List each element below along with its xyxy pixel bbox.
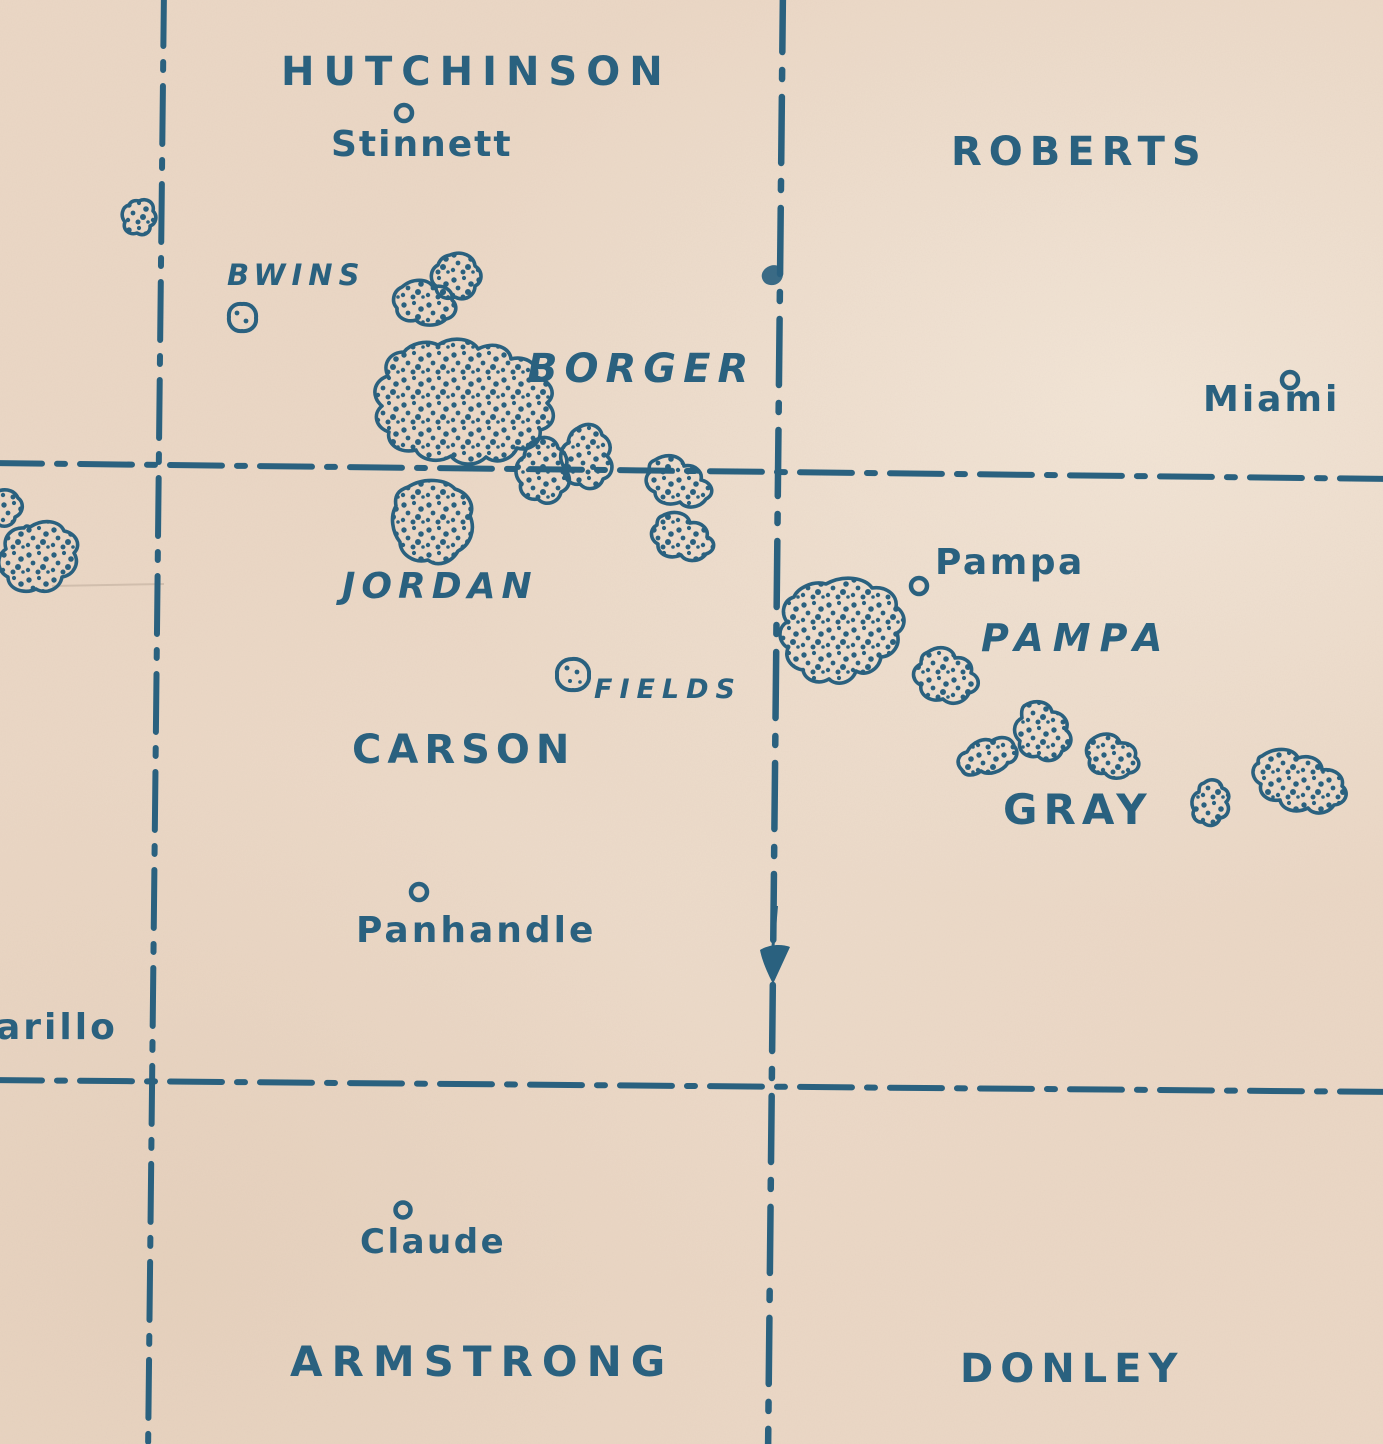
county-label-carson: CARSON: [352, 730, 575, 770]
county-label-donley: DONLEY: [960, 1349, 1184, 1389]
field-label-pampa: PAMPA: [981, 619, 1171, 657]
field-label-borger: BORGER: [527, 349, 755, 389]
field-label-bwins: BWINS: [227, 261, 365, 290]
county-label-armstrong: ARMSTRONG: [290, 1341, 674, 1383]
field-label-jordan: JORDAN: [342, 569, 538, 605]
oil-blob: [122, 200, 156, 235]
town-label-miami: Miami: [1203, 382, 1340, 418]
paper-texture: [0, 0, 1383, 1444]
town-label-panhandle: Panhandle: [356, 913, 596, 949]
town-label-pampa: Pampa: [935, 545, 1085, 581]
field-label-fields: FIELDS: [594, 676, 742, 703]
town-label-amarillo-partial: arillo: [0, 1010, 118, 1046]
town-label-claude: Claude: [360, 1225, 506, 1259]
oil-blob: [431, 253, 481, 299]
town-label-stinnett: Stinnett: [331, 127, 513, 163]
oil-blob-jordan: [393, 480, 473, 563]
county-label-gray: GRAY: [1003, 789, 1153, 831]
panhandle-map: HUTCHINSON ROBERTS CARSON GRAY ARMSTRONG…: [0, 0, 1383, 1444]
county-label-roberts: ROBERTS: [951, 132, 1208, 172]
map-graphics: [0, 0, 1383, 1444]
county-label-hutchinson: HUTCHINSON: [281, 52, 672, 92]
